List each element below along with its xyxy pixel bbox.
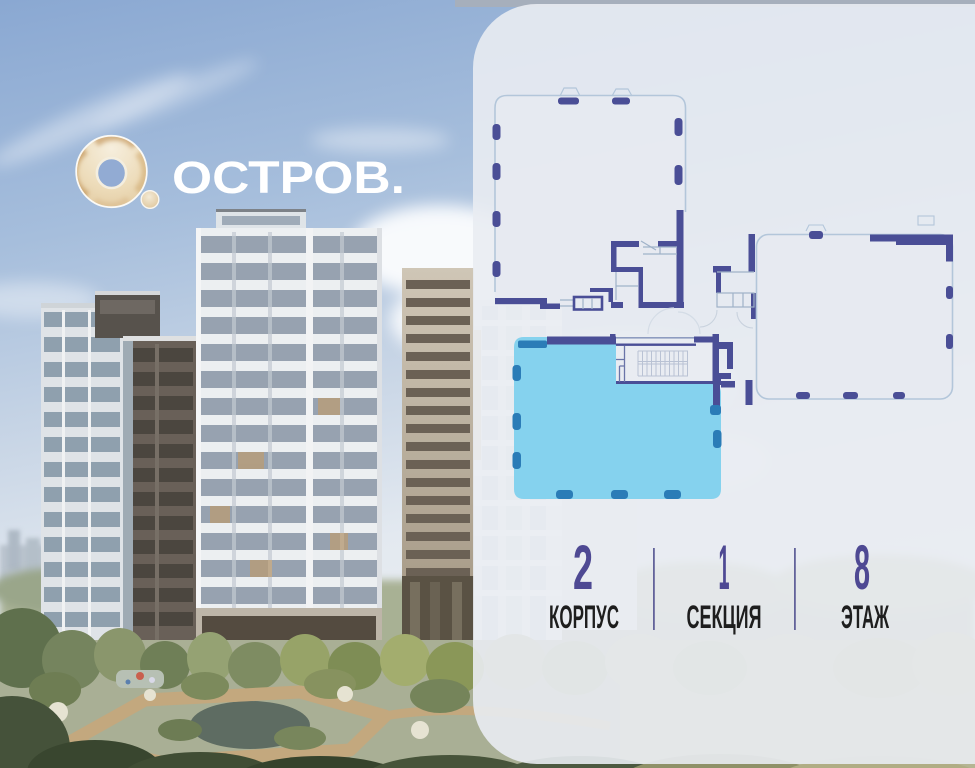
svg-text:1: 1: [719, 533, 730, 603]
svg-text:ЭТАЖ: ЭТАЖ: [841, 599, 890, 635]
svg-text:КОРПУС: КОРПУС: [549, 599, 619, 635]
svg-text:СЕКЦИЯ: СЕКЦИЯ: [687, 599, 762, 635]
svg-text:2: 2: [573, 533, 593, 603]
svg-text:8: 8: [854, 533, 870, 603]
